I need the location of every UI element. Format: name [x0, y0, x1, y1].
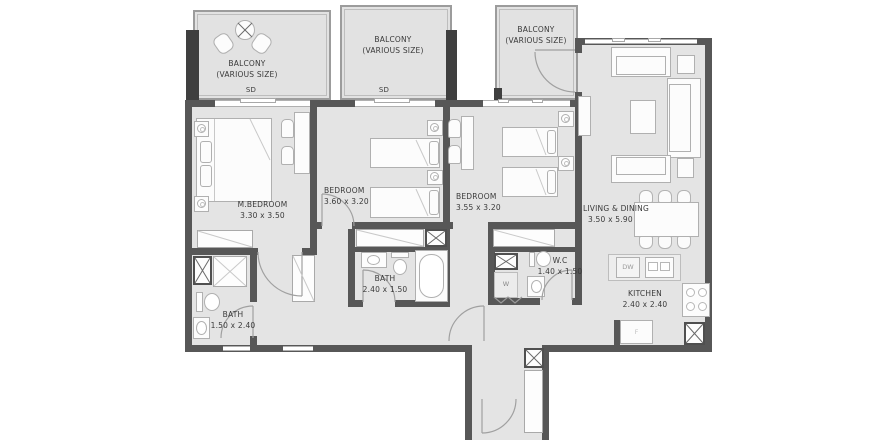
toilet-tank [391, 252, 409, 258]
wall-br3-bottom-a [450, 222, 453, 229]
room-name: W.C [535, 255, 585, 266]
lamp-icon [430, 172, 439, 181]
wall-bottom-right [542, 345, 712, 352]
room-dims: 3.55 x 3.20 [456, 202, 536, 213]
hall-wardrobe-symbol [292, 255, 315, 302]
chair-symbol [448, 145, 461, 164]
balcony-2-name: BALCONY [338, 34, 448, 45]
balcony-1-name: BALCONY [192, 58, 302, 69]
lamp-icon [561, 114, 570, 123]
console-table-symbol [578, 96, 591, 136]
wall-bath2-bottom-a [348, 300, 363, 307]
balcony-3-size: (VARIOUS SIZE) [482, 35, 590, 46]
wc-label: W.C 1.40 x 1.50 [535, 255, 585, 277]
br3-wardrobe-symbol [493, 229, 555, 247]
pillow-symbol [547, 130, 556, 154]
dining-chair-symbol [677, 236, 691, 249]
mbr-wardrobe-symbol [197, 230, 253, 248]
balcony-table-symbol [235, 20, 255, 40]
toilet-tank [196, 292, 203, 312]
br2-wardrobe-symbol [356, 229, 424, 247]
sliding-door-2-leaf [374, 98, 410, 103]
living-window-tick-1 [612, 38, 625, 42]
wall-mbr-br2 [310, 107, 317, 255]
bedroom3-window-tick-1 [498, 99, 509, 103]
wall-bath1-right-b [250, 336, 257, 345]
room-dims: 3.60 x 3.20 [324, 196, 404, 207]
duct-shaft-symbol [684, 322, 705, 345]
wall-mbr-bottom-b [302, 248, 317, 255]
balcony-1-parapet [197, 14, 327, 96]
balcony-1-size: (VARIOUS SIZE) [192, 69, 302, 80]
room-name: KITCHEN [610, 288, 680, 299]
balcony-3-label: BALCONY (VARIOUS SIZE) [482, 24, 590, 46]
wall-balcony3-living-a [575, 45, 582, 53]
sofa-seat [616, 56, 666, 75]
wall-br2-bottom-b [352, 222, 450, 229]
room-dims: 1.40 x 1.50 [535, 266, 585, 277]
bath1-sill [223, 346, 250, 351]
lamp-icon [430, 123, 439, 132]
washer-label: W [494, 280, 518, 288]
wall-corridor-left [465, 345, 472, 440]
side-table-symbol [677, 158, 694, 178]
side-table-symbol [677, 55, 695, 74]
desk-symbol [461, 116, 474, 170]
room-dims: 2.40 x 1.50 [355, 284, 415, 295]
pillow-symbol [200, 141, 212, 163]
chair-symbol [448, 119, 461, 138]
living-window-tick-2 [648, 38, 661, 42]
duct-shaft-symbol [524, 348, 544, 368]
bed-headboard-line [214, 119, 215, 201]
desk-symbol [294, 112, 310, 174]
coffee-table-symbol [630, 100, 656, 134]
pillow-symbol [429, 190, 439, 215]
sink-basin [648, 262, 658, 271]
room-dims: 3.30 x 3.50 [205, 210, 320, 221]
balcony-2-size: (VARIOUS SIZE) [338, 45, 448, 56]
room-name: M.BEDROOM [205, 199, 320, 210]
sink-bowl [367, 255, 380, 265]
duct-shaft-symbol [193, 256, 212, 285]
burner-icon [698, 288, 707, 297]
dining-chair-symbol [639, 236, 653, 249]
chair-symbol [281, 146, 294, 165]
room-dims: 2.40 x 2.40 [610, 299, 680, 310]
sink-bowl [531, 280, 542, 293]
shower-symbol [213, 256, 247, 287]
hall-sill [283, 346, 313, 351]
kitchen-label: KITCHEN 2.40 x 2.40 [610, 288, 680, 310]
bedroom-3-label: BEDROOM 3.55 x 3.20 [456, 191, 536, 213]
duct-shaft-symbol [425, 229, 447, 247]
sliding-door-2-label: SD [371, 85, 397, 96]
living-dining-label: LIVING & DINING 3.50 x 5.90 [583, 203, 673, 225]
master-bedroom-label: M.BEDROOM 3.30 x 3.50 [205, 199, 320, 221]
balcony-2-label: BALCONY (VARIOUS SIZE) [338, 34, 448, 56]
chair-symbol [281, 119, 294, 138]
master-bath-label: BATH 1.50 x 2.40 [205, 309, 261, 331]
balcony-3-name: BALCONY [482, 24, 590, 35]
balcony-1-label: BALCONY (VARIOUS SIZE) [192, 58, 302, 80]
living-window [585, 39, 697, 44]
lamp-icon [561, 158, 570, 167]
bedroom3-window [483, 100, 570, 107]
wall-mbr-bottom-a [185, 248, 258, 255]
room-dims: 3.50 x 5.90 [583, 214, 673, 225]
wall-wc-bottom-a [488, 298, 540, 305]
room-name: BATH [355, 273, 415, 284]
sofa-seat [669, 84, 691, 152]
room-name: BEDROOM [456, 191, 536, 202]
corridor-closet-symbol [524, 370, 543, 433]
duct-shaft-symbol [494, 253, 518, 270]
room-name: BATH [205, 309, 261, 320]
room-name: LIVING & DINING [583, 203, 673, 214]
pillow-symbol [547, 170, 556, 194]
balcony-3-parapet [499, 9, 574, 96]
wall-left [185, 100, 192, 352]
lamp-icon [197, 124, 206, 133]
sliding-door-1-leaf [240, 98, 276, 103]
balcony-3 [495, 5, 578, 100]
burner-icon [686, 288, 695, 297]
burner-icon [686, 302, 695, 311]
wall-bath2-left [348, 229, 355, 307]
room-dims: 1.50 x 2.40 [205, 320, 261, 331]
pillow-symbol [429, 141, 439, 165]
floor-plan: DW F W [0, 0, 890, 440]
sofa-seat [616, 157, 666, 175]
wall-bath1-right-a [250, 255, 257, 302]
bedroom-2-label: BEDROOM 3.60 x 3.20 [324, 185, 404, 207]
pillow-symbol [200, 165, 212, 187]
sink-basin [660, 262, 670, 271]
dishwasher-label: DW [616, 263, 640, 271]
wall-br2-bottom-a [317, 222, 322, 229]
fridge-label: F [620, 328, 653, 336]
burner-icon [698, 302, 707, 311]
room-name: BEDROOM [324, 185, 404, 196]
bathtub-inner [419, 254, 444, 298]
bedroom3-window-tick-2 [532, 99, 543, 103]
stove-symbol [682, 283, 710, 317]
wall-wc-bottom-b [572, 298, 582, 305]
shared-bath-label: BATH 2.40 x 1.50 [355, 273, 415, 295]
dining-chair-symbol [658, 236, 672, 249]
sliding-door-1-label: SD [238, 85, 264, 96]
wall-br3-bottom-b [488, 222, 582, 229]
